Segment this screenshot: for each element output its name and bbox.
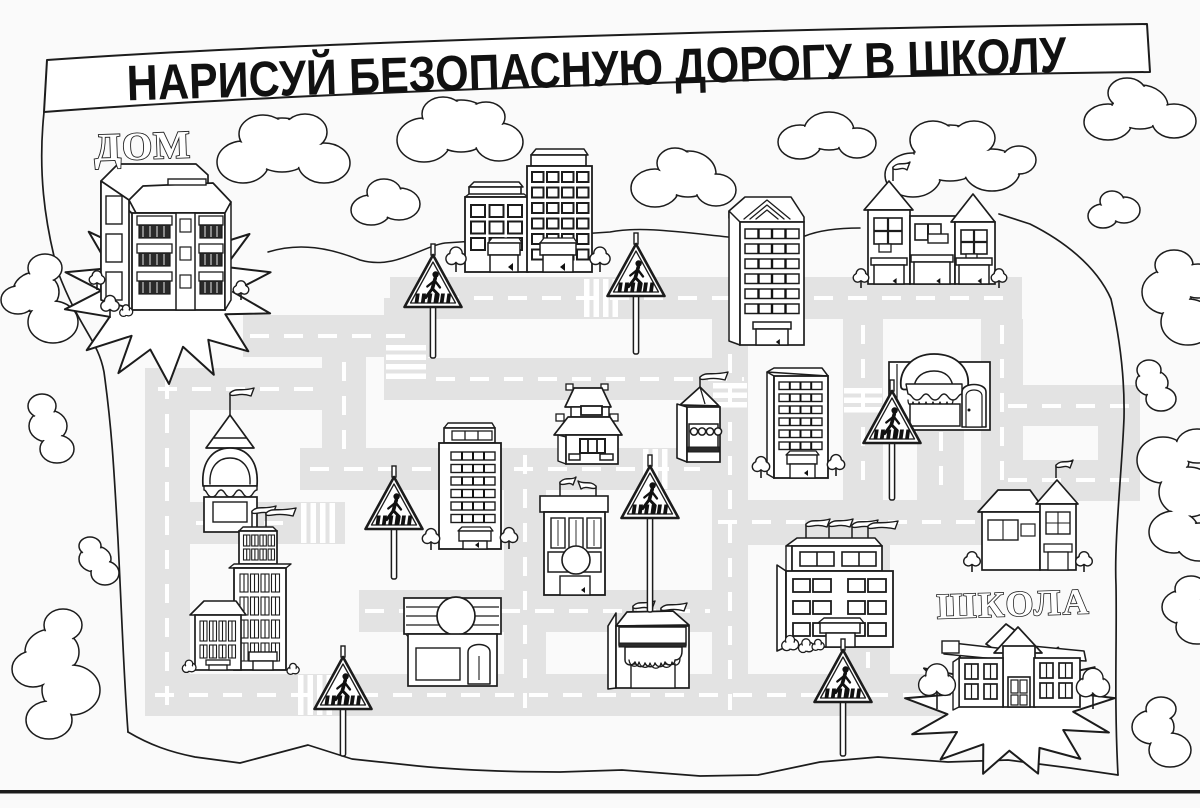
svg-text:ДОМ: ДОМ: [93, 123, 191, 169]
svg-text:ШКОЛА: ШКОЛА: [936, 581, 1091, 626]
